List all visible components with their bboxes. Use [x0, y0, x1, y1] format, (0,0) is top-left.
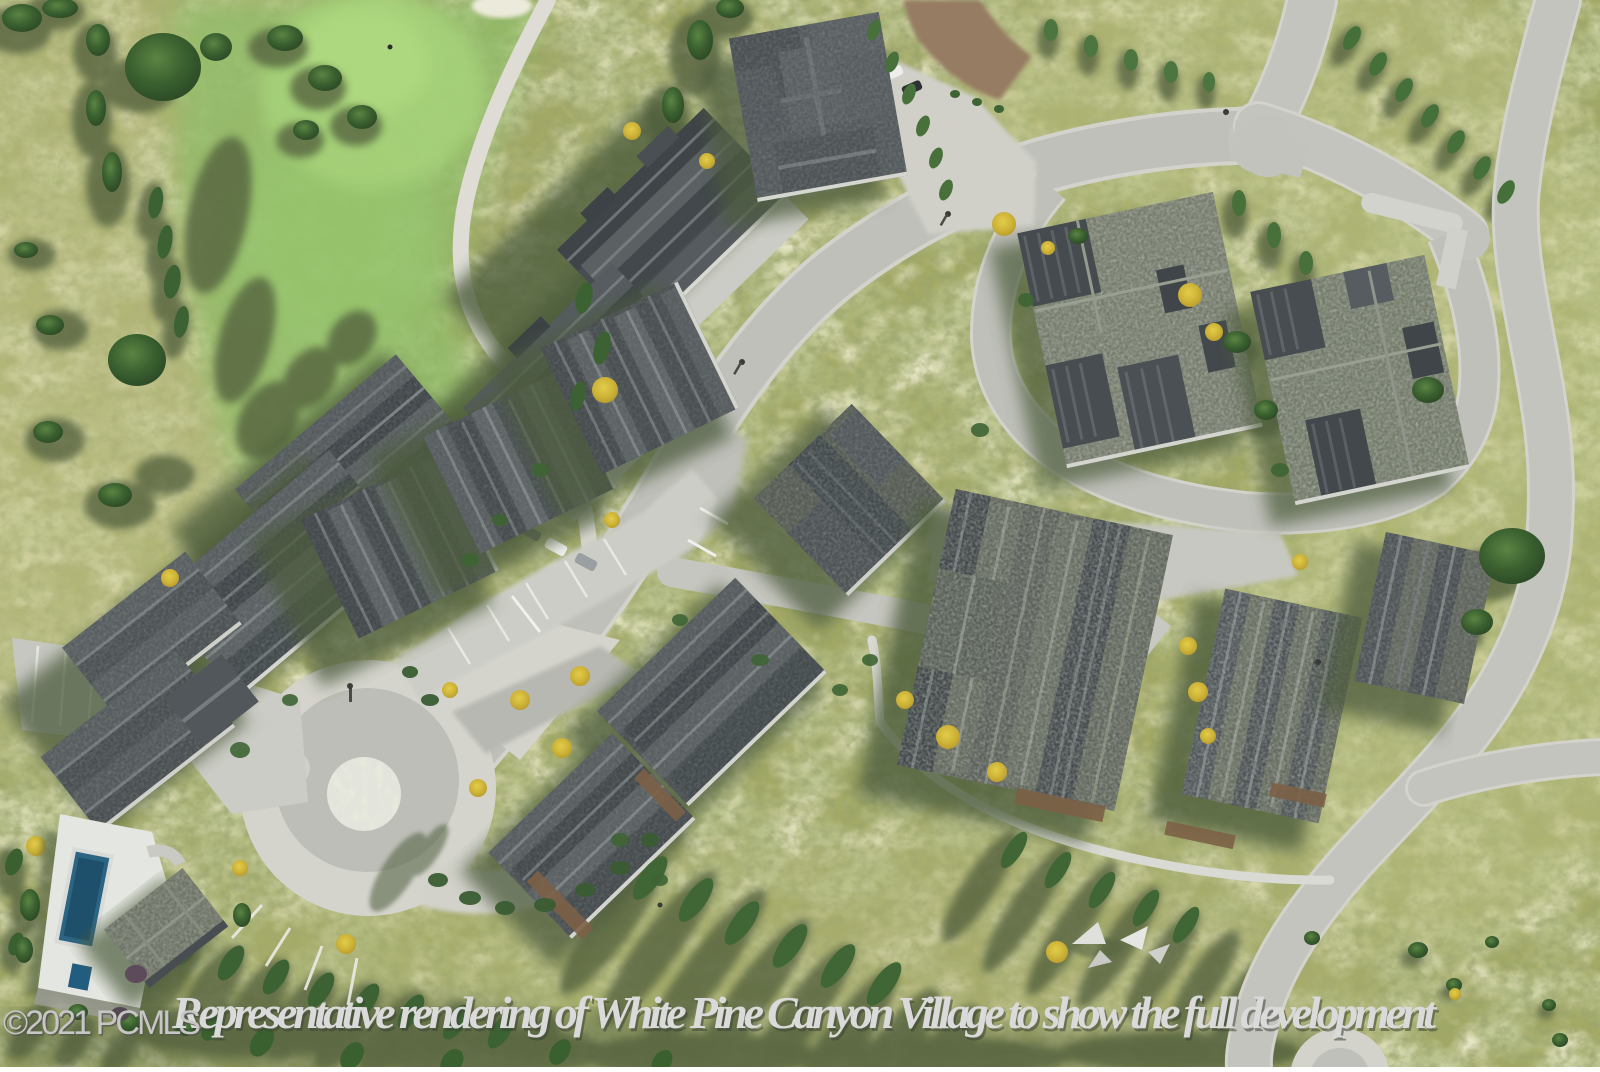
svg-text:©2021 PCMLS: ©2021 PCMLS — [3, 1004, 201, 1042]
svg-text:Representative rendering of Wh: Representative rendering of White Pine C… — [171, 987, 1437, 1038]
